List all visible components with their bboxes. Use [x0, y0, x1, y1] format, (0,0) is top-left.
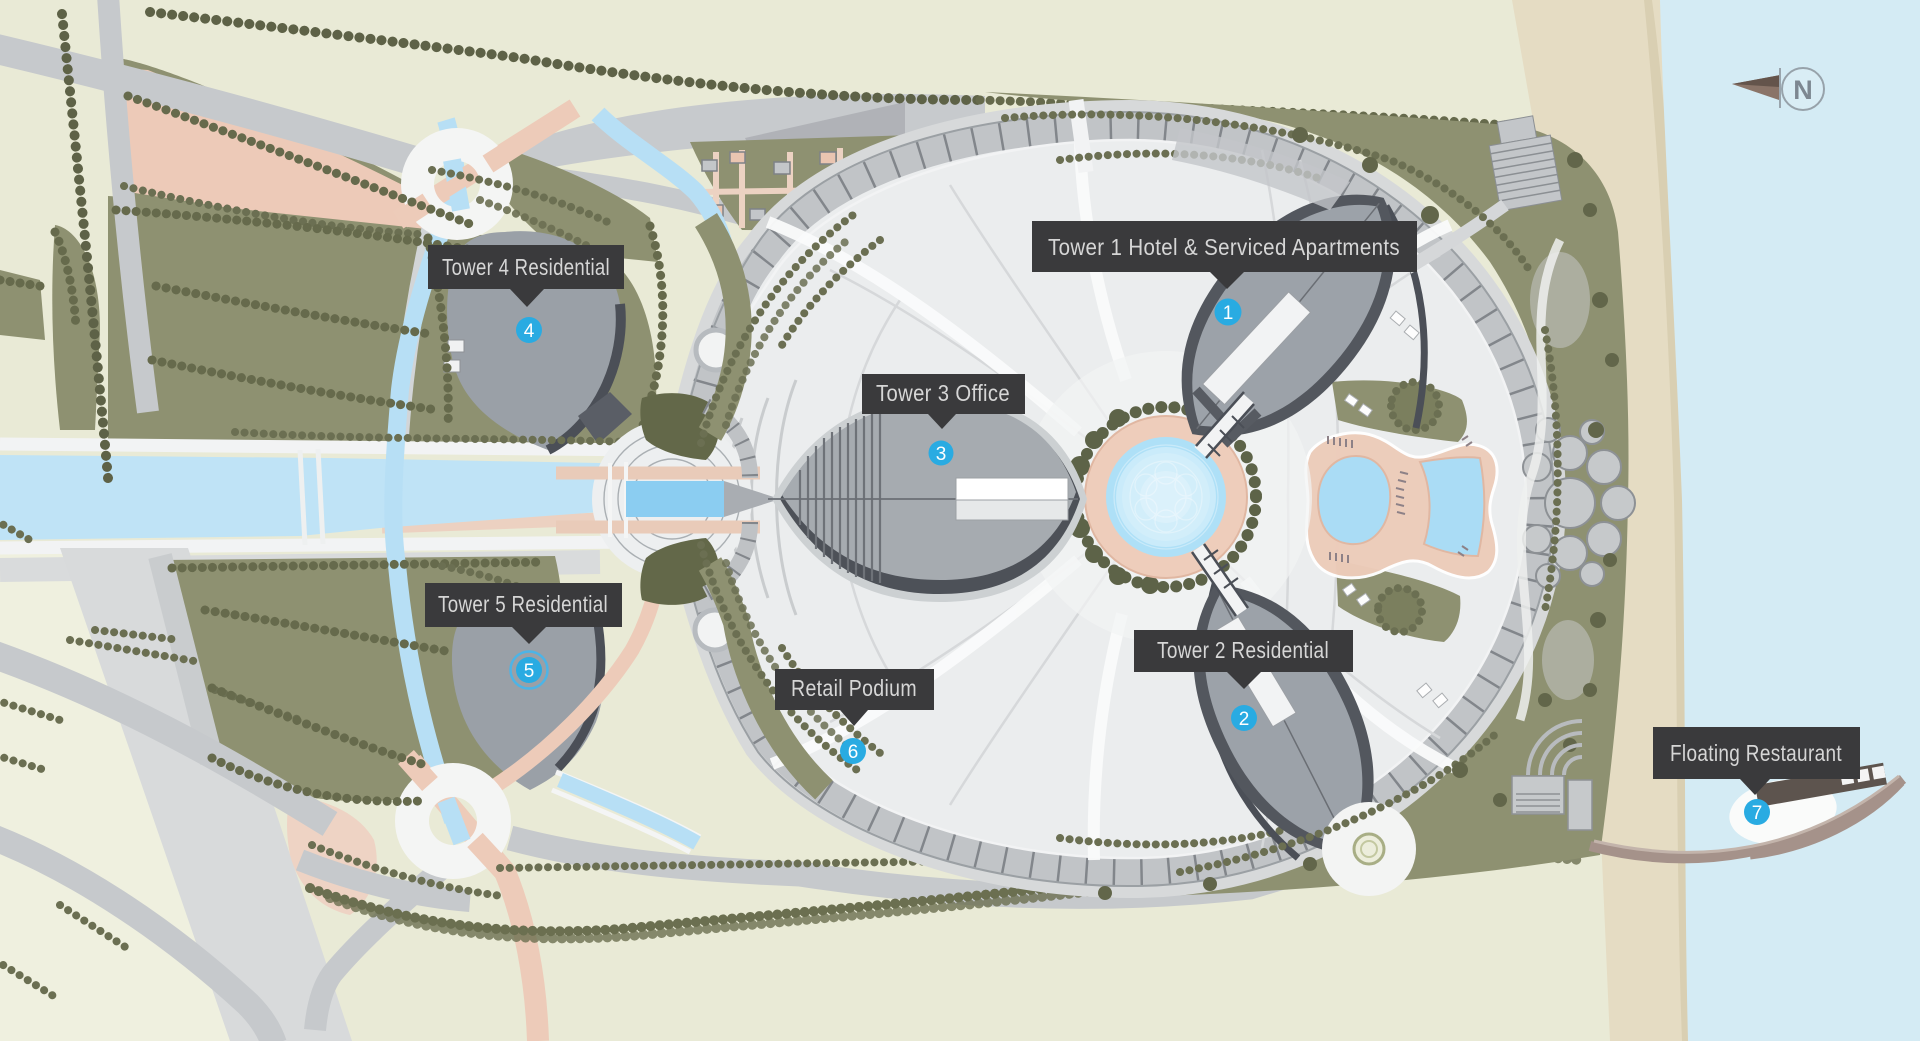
svg-text:Floating Restaurant: Floating Restaurant — [1670, 740, 1842, 766]
svg-text:6: 6 — [848, 742, 859, 763]
svg-text:Retail Podium: Retail Podium — [791, 675, 917, 701]
svg-text:Tower 1 Hotel & Serviced Apart: Tower 1 Hotel & Serviced Apartments — [1048, 234, 1400, 260]
svg-text:N: N — [1793, 75, 1813, 105]
svg-text:Tower 2 Residential: Tower 2 Residential — [1157, 637, 1329, 663]
svg-text:2: 2 — [1239, 709, 1250, 730]
svg-text:5: 5 — [524, 661, 535, 682]
svg-text:7: 7 — [1752, 803, 1763, 824]
svg-text:Tower 5 Residential: Tower 5 Residential — [438, 591, 608, 617]
svg-text:Tower 3 Office: Tower 3 Office — [876, 380, 1010, 406]
svg-text:1: 1 — [1223, 303, 1234, 324]
svg-text:4: 4 — [524, 321, 535, 342]
svg-text:Tower 4 Residential: Tower 4 Residential — [442, 254, 610, 280]
svg-text:3: 3 — [936, 444, 947, 465]
